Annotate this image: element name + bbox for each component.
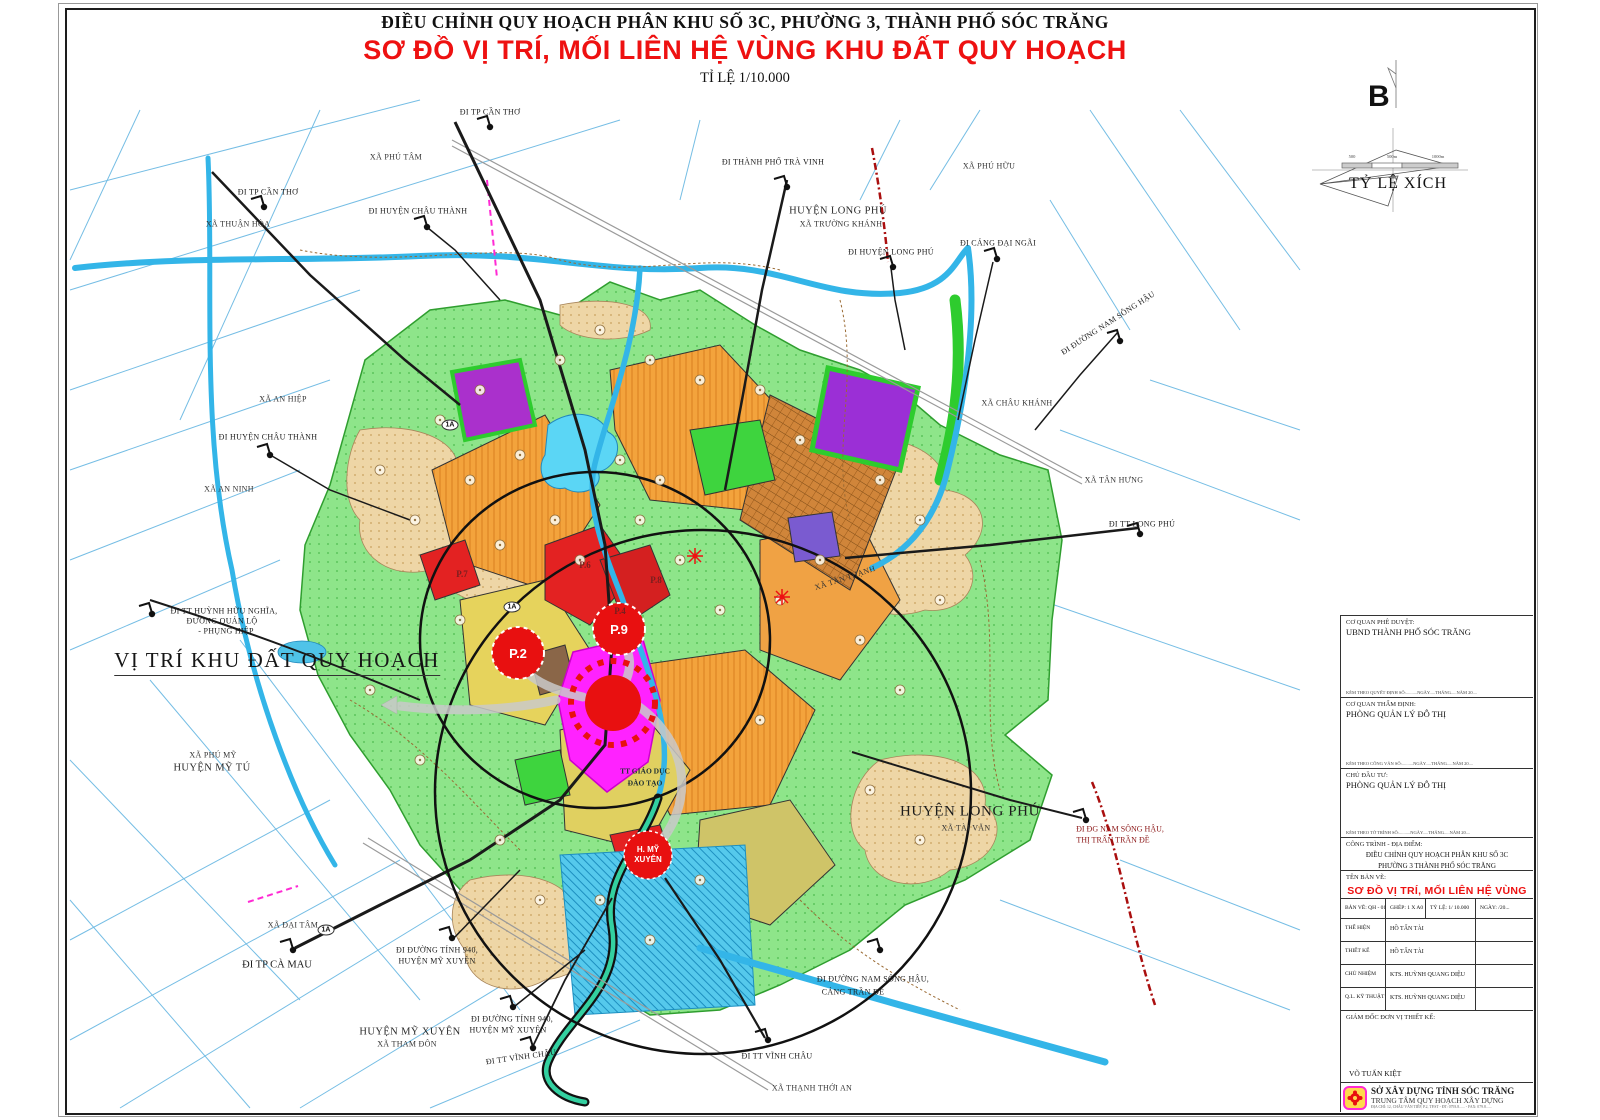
marker-p9-label: P.9	[610, 622, 628, 637]
tb-org: SỞ XÂY DỰNG TỈNH SÓC TRĂNG TRUNG TÂM QUY…	[1341, 1083, 1533, 1112]
tb-investor-value: PHÒNG QUẢN LÝ ĐÔ THỊ	[1341, 779, 1533, 790]
tb-approving-agency: CƠ QUAN PHÊ DUYỆT: UBND THÀNH PHỐ SÓC TR…	[1341, 616, 1533, 698]
tb-investor-label: CHỦ ĐẦU TƯ:	[1341, 769, 1533, 779]
tb-approve-label: CƠ QUAN PHÊ DUYỆT:	[1341, 616, 1533, 626]
tb-appraise-label: CƠ QUAN THẨM ĐỊNH:	[1341, 698, 1533, 708]
tb-project-line1: ĐIỀU CHỈNH QUY HOẠCH PHÂN KHU SỐ 3C	[1341, 850, 1533, 861]
tb-sig-0	[1476, 919, 1533, 941]
marker-hmx-label1: H. MỸ	[637, 845, 660, 854]
org-logo	[1343, 1086, 1367, 1110]
tb-approve-value: UBND THÀNH PHỐ SÓC TRĂNG	[1341, 626, 1533, 637]
scale-tick-0: 500	[1349, 154, 1356, 159]
marker-hmx-label2: XUYÊN	[634, 855, 662, 864]
tb-drawing-label: TÊN BẢN VẼ:	[1341, 871, 1533, 881]
planning-map-sheet: { "page": { "title_line1": "ĐIỀU CHỈNH Q…	[0, 0, 1600, 1120]
tb-project-label: CÔNG TRÌNH - ĐỊA ĐIỂM:	[1341, 838, 1533, 848]
marker-site	[585, 675, 641, 731]
tb-appraising-agency: CƠ QUAN THẨM ĐỊNH: PHÒNG QUẢN LÝ ĐÔ THỊ …	[1341, 698, 1533, 769]
tb-role-2: CHỦ NHIỆM	[1341, 965, 1386, 987]
tb-director-label: GIÁM ĐỐC ĐƠN VỊ THIẾT KẾ:	[1341, 1011, 1533, 1021]
tb-name-2: KTS. HUỲNH QUANG DIỆU	[1386, 965, 1476, 987]
tb-role-1: THIẾT KẾ	[1341, 942, 1386, 964]
tb-drawing-title: SƠ ĐỒ VỊ TRÍ, MỐI LIÊN HỆ VÙNG	[1341, 881, 1533, 897]
star-marker-1	[687, 548, 703, 564]
tb-director: GIÁM ĐỐC ĐƠN VỊ THIẾT KẾ: VÕ TUẤN KIỆT	[1341, 1011, 1533, 1083]
tb-paper: GHÉP: 1 X A0	[1386, 899, 1426, 918]
title-scale: TỈ LỆ 1/10.000	[90, 70, 1400, 87]
title-line2: SƠ ĐỒ VỊ TRÍ, MỐI LIÊN HỆ VÙNG KHU ĐẤT Q…	[90, 35, 1400, 66]
tb-date: NGÀY: /20...	[1476, 899, 1533, 918]
tb-person-row-0: THỂ HIỆN HỒ TẤN TÀI	[1341, 919, 1533, 942]
tb-name-3: KTS. HUỲNH QUANG DIỆU	[1386, 988, 1476, 1010]
tb-project-line2: PHƯỜNG 3 THÀNH PHỐ SÓC TRĂNG	[1341, 861, 1533, 872]
tb-person-row-2: CHỦ NHIỆM KTS. HUỲNH QUANG DIỆU	[1341, 965, 1533, 988]
tb-sig-3	[1476, 988, 1533, 1010]
tb-drawing-name: TÊN BẢN VẼ: SƠ ĐỒ VỊ TRÍ, MỐI LIÊN HỆ VÙ…	[1341, 871, 1533, 899]
tb-name-0: HỒ TẤN TÀI	[1386, 919, 1476, 941]
tb-sheet: BẢN VẼ: QH - 01/02	[1341, 899, 1386, 918]
marker-p2-label: P.2	[509, 646, 527, 661]
org-name: SỞ XÂY DỰNG TỈNH SÓC TRĂNG	[1371, 1086, 1514, 1096]
tb-director-name: VÕ TUẤN KIỆT	[1349, 1069, 1401, 1078]
scale-tick-1: 500m	[1387, 154, 1397, 159]
tb-person-row-3: Q.L. KỸ THUẬT KTS. HUỲNH QUANG DIỆU	[1341, 988, 1533, 1011]
tb-approve-note: KÈM THEO QUYẾT ĐỊNH SỐ:..........NGÀY...…	[1346, 690, 1477, 695]
tb-role-3: Q.L. KỸ THUẬT	[1341, 988, 1386, 1010]
title-block: CƠ QUAN PHÊ DUYỆT: UBND THÀNH PHỐ SÓC TR…	[1340, 615, 1533, 1112]
tb-appraise-note: KÈM THEO CÔNG VĂN SỐ:..........NGÀY.....…	[1346, 761, 1473, 766]
tb-investor-note: KÈM THEO TỜ TRÌNH SỐ:..........NGÀY.....…	[1346, 830, 1470, 835]
tb-scale: TỶ LỆ: 1/ 10.000	[1426, 899, 1476, 918]
tb-investor: CHỦ ĐẦU TƯ: PHÒNG QUẢN LÝ ĐÔ THỊ KÈM THE…	[1341, 769, 1533, 838]
tb-person-row-1: THIẾT KẾ HỒ TẤN TÀI	[1341, 942, 1533, 965]
sheet-titles: ĐIỀU CHỈNH QUY HOẠCH PHÂN KHU SỐ 3C, PHƯ…	[90, 0, 1400, 87]
star-marker-2	[774, 589, 790, 605]
north-label: B	[1368, 80, 1390, 114]
tb-name-1: HỒ TẤN TÀI	[1386, 942, 1476, 964]
tb-role-0: THỂ HIỆN	[1341, 919, 1386, 941]
tb-sig-1	[1476, 942, 1533, 964]
tb-sig-2	[1476, 965, 1533, 987]
org-address: ĐỊA CHỈ: 12, CHÂU VĂN TIẾP, P.2, TP.ST -…	[1371, 1105, 1514, 1109]
tb-project: CÔNG TRÌNH - ĐỊA ĐIỂM: ĐIỀU CHỈNH QUY HO…	[1341, 838, 1533, 871]
title-line1: ĐIỀU CHỈNH QUY HOẠCH PHÂN KHU SỐ 3C, PHƯ…	[90, 12, 1400, 33]
tb-sheet-row: BẢN VẼ: QH - 01/02 GHÉP: 1 X A0 TỶ LỆ: 1…	[1341, 899, 1533, 919]
org-center: TRUNG TÂM QUY HOẠCH XÂY DỰNG	[1371, 1096, 1514, 1105]
scale-caption: TỶ LỆ XÍCH	[1349, 175, 1447, 193]
scale-bar	[1342, 163, 1458, 168]
scale-tick-2: 1000m	[1432, 154, 1445, 159]
tb-appraise-value: PHÒNG QUẢN LÝ ĐÔ THỊ	[1341, 708, 1533, 719]
site-big-label: VỊ TRÍ KHU ĐẤT QUY HOẠCH	[114, 648, 440, 676]
